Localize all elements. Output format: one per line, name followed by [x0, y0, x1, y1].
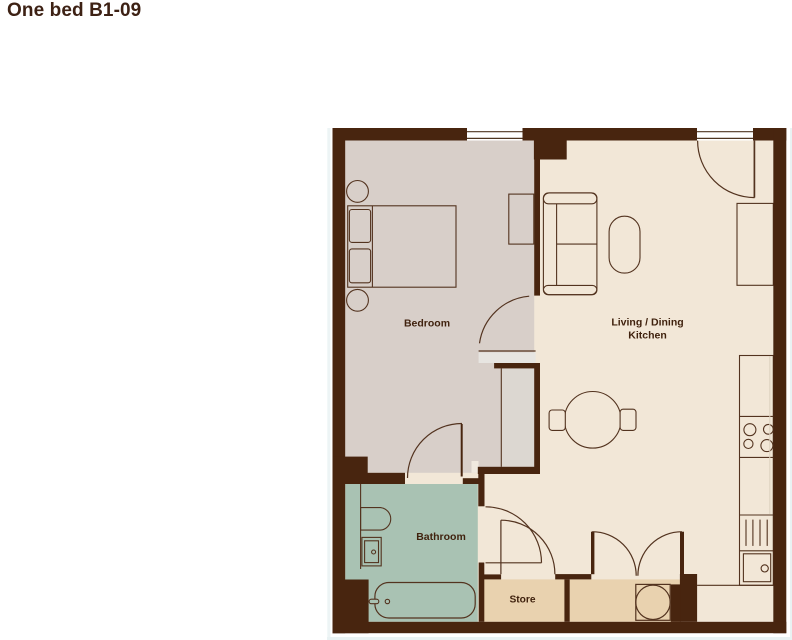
svg-text:One bed B1-09: One bed B1-09 [7, 0, 141, 21]
svg-text:Store: Store [509, 595, 535, 606]
svg-text:Bathroom: Bathroom [416, 531, 466, 543]
svg-text:Bedroom: Bedroom [404, 318, 450, 330]
svg-text:Living / Dining: Living / Dining [611, 316, 683, 328]
svg-text:Kitchen: Kitchen [628, 329, 667, 341]
